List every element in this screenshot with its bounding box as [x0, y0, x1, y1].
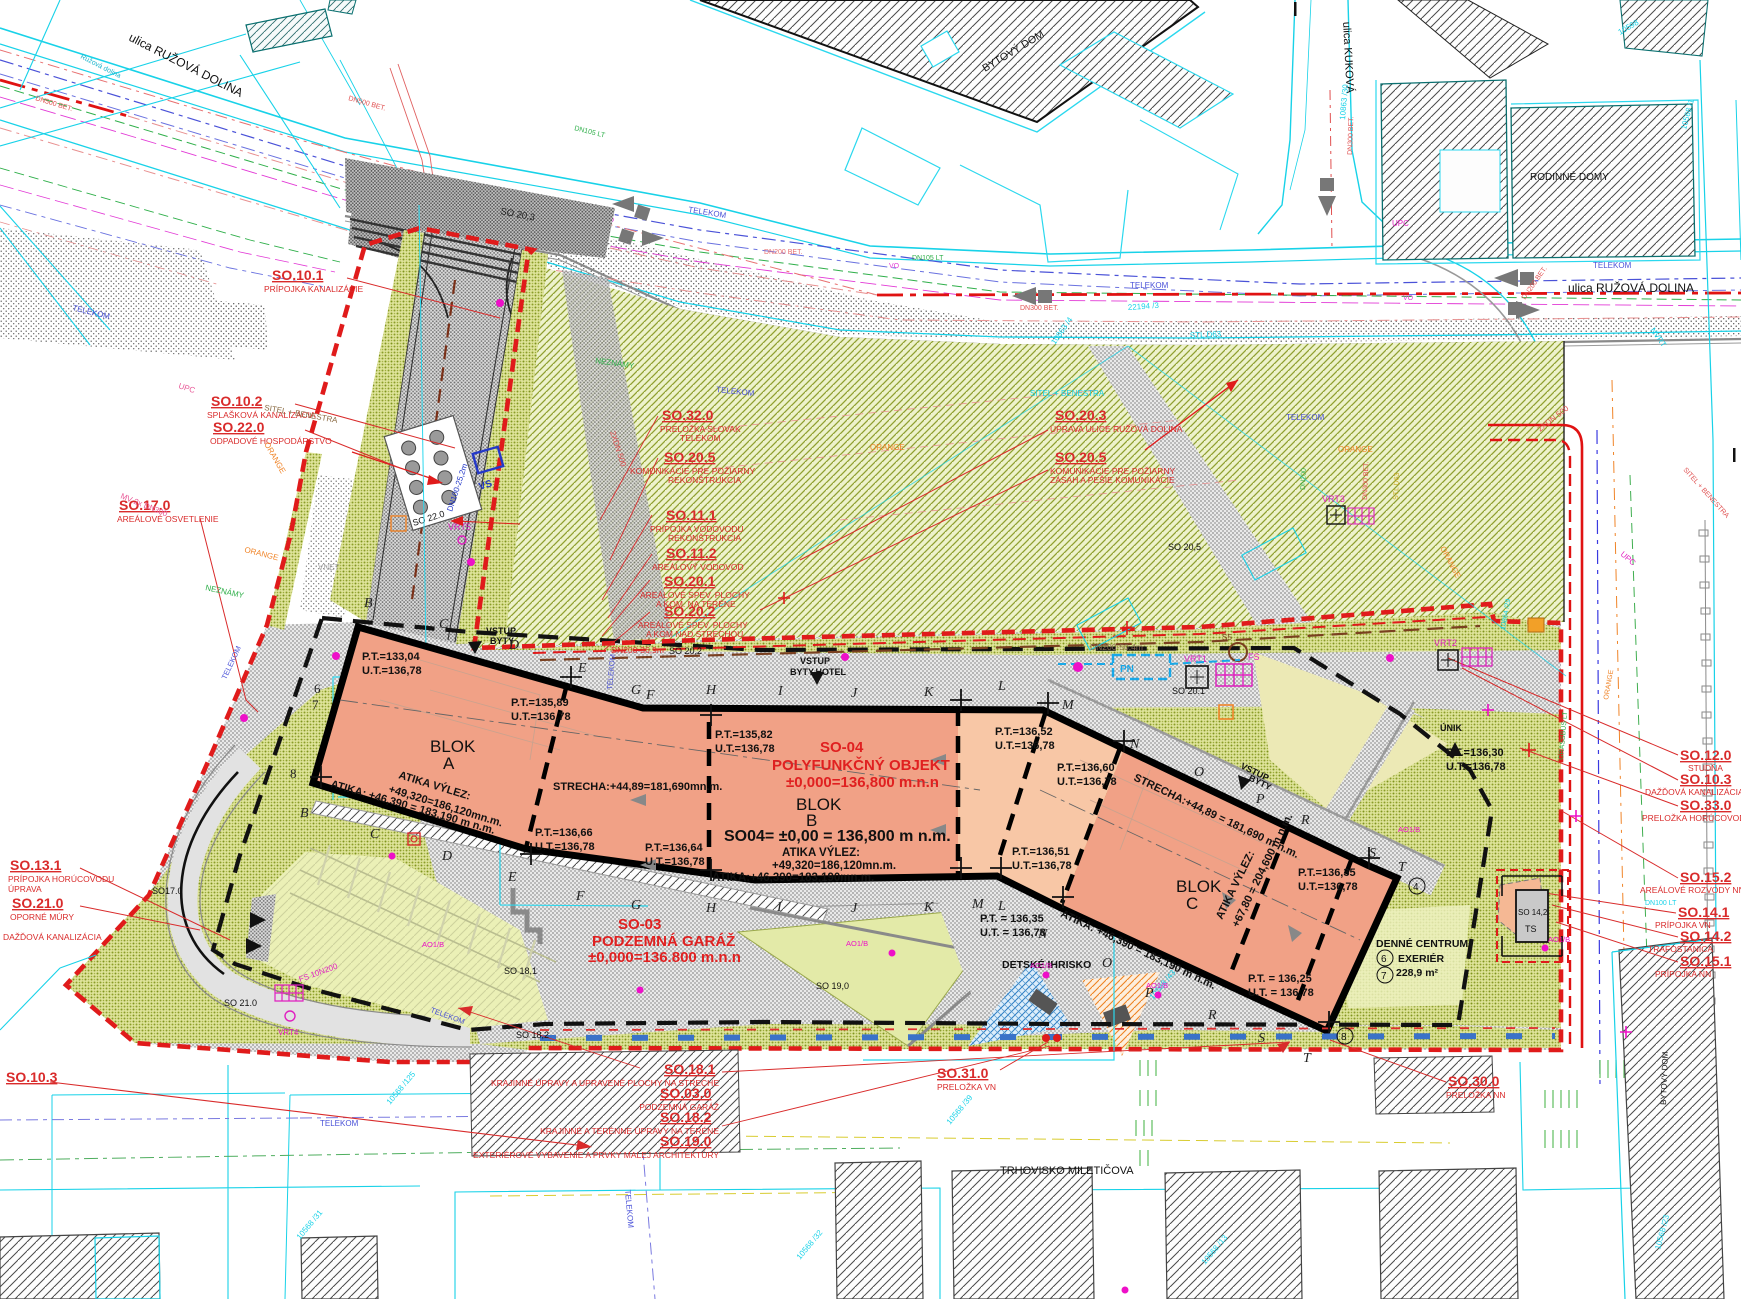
svg-text:TELEKOM: TELEKOM — [320, 1119, 359, 1128]
svg-text:BLOK: BLOK — [796, 795, 842, 814]
svg-text:SO.18.2: SO.18.2 — [660, 1109, 712, 1125]
svg-text:SO 21.0: SO 21.0 — [224, 998, 257, 1008]
svg-text:AO1/B: AO1/B — [422, 940, 444, 949]
svg-text:6: 6 — [1381, 954, 1387, 965]
svg-text:SO.14.2: SO.14.2 — [1680, 928, 1732, 944]
svg-text:U.T.=136,78: U.T.=136,78 — [1012, 860, 1072, 872]
svg-text:T: T — [1303, 1051, 1312, 1066]
svg-text:AREÁLOVÝ VODOVOD: AREÁLOVÝ VODOVOD — [652, 562, 744, 572]
svg-text:+49,320=186,120mn.m.: +49,320=186,120mn.m. — [772, 860, 896, 872]
svg-text:SO 20,5: SO 20,5 — [1168, 542, 1201, 552]
svg-text:AO1/B: AO1/B — [1398, 825, 1420, 834]
svg-text:U.T.=136,78: U.T.=136,78 — [645, 856, 705, 868]
svg-text:U.T. = 136,78: U.T. = 136,78 — [1248, 987, 1314, 999]
svg-text:O: O — [1102, 956, 1112, 971]
svg-text:VO: VO — [889, 263, 900, 270]
svg-text:B: B — [364, 596, 373, 611]
svg-text:P.T.=136,52: P.T.=136,52 — [995, 726, 1053, 738]
svg-text:SO.11.2: SO.11.2 — [666, 545, 717, 561]
svg-text:E: E — [507, 870, 517, 885]
svg-text:DN200-50,4m: DN200-50,4m — [1090, 642, 1143, 652]
svg-text:228,9 m²: 228,9 m² — [1396, 967, 1439, 979]
svg-text:UPC: UPC — [1392, 219, 1409, 228]
svg-text:A KOM NAD STRECHOU: A KOM NAD STRECHOU — [646, 629, 743, 639]
svg-text:DN200-36,9m: DN200-36,9m — [611, 645, 664, 655]
svg-text:U.T. = 136,78: U.T. = 136,78 — [980, 927, 1046, 939]
svg-text:DENNÉ CENTRUM: DENNÉ CENTRUM — [1376, 937, 1468, 950]
svg-text:SO.21.0: SO.21.0 — [12, 895, 64, 911]
svg-text:ATIKA VÝLEZ:: ATIKA VÝLEZ: — [782, 846, 860, 859]
svg-text:U.T.=136,78: U.T.=136,78 — [1057, 776, 1117, 788]
svg-text:SO.22.0: SO.22.0 — [213, 419, 265, 435]
svg-text:VRT2: VRT2 — [1434, 638, 1457, 648]
svg-text:DN300 BET.: DN300 BET. — [1362, 461, 1370, 500]
svg-text:POLYFUNKČNÝ OBJEKT: POLYFUNKČNÝ OBJEKT — [772, 756, 950, 774]
svg-text:DN300 BET.: DN300 BET. — [1020, 305, 1059, 312]
svg-text:H: H — [705, 901, 717, 916]
svg-text:BYTOVÝ DOM: BYTOVÝ DOM — [1659, 1051, 1670, 1105]
svg-text:SO.11.1: SO.11.1 — [666, 507, 717, 523]
svg-text:AO1/B: AO1/B — [1030, 961, 1052, 970]
svg-text:ATIKA:+46,390=183,190mn.m.: ATIKA:+46,390=183,190mn.m. — [712, 872, 874, 884]
svg-text:DAŽĎOVÁ KANALIZÁCIA: DAŽĎOVÁ KANALIZÁCIA — [3, 932, 102, 942]
svg-text:SO.14.1: SO.14.1 — [1678, 904, 1730, 920]
svg-text:8: 8 — [1341, 1032, 1347, 1043]
svg-text:P.T.=136,60: P.T.=136,60 — [1057, 762, 1115, 774]
svg-text:EXTERIÉROVÉ VYBAVENIE A PRVKY: EXTERIÉROVÉ VYBAVENIE A PRVKY MALEJ ARCH… — [473, 1150, 719, 1160]
svg-text:SO.30.0: SO.30.0 — [1448, 1073, 1500, 1089]
svg-text:L: L — [997, 679, 1006, 694]
svg-text:SO04= ±0,00 = 136,800 m n.m.: SO04= ±0,00 = 136,800 m n.m. — [724, 828, 951, 845]
svg-text:SO.13.1: SO.13.1 — [10, 857, 62, 873]
svg-text:VRT4: VRT4 — [278, 1028, 299, 1037]
svg-text:A: A — [443, 754, 455, 773]
svg-text:SO.20.1: SO.20.1 — [664, 573, 716, 589]
svg-text:STRECHA:+44,89=181,690mn.m.: STRECHA:+44,89=181,690mn.m. — [553, 781, 722, 793]
svg-text:G: G — [631, 898, 641, 913]
svg-text:U.T.=136,78: U.T.=136,78 — [715, 743, 775, 755]
svg-text:4: 4 — [1413, 882, 1419, 893]
svg-text:E: E — [577, 661, 587, 676]
svg-text:SO 18,2: SO 18,2 — [516, 1030, 549, 1040]
svg-text:F: F — [645, 688, 655, 703]
svg-text:VNET: VNET — [318, 563, 339, 572]
svg-text:R: R — [1207, 1008, 1217, 1023]
svg-text:AO1/B: AO1/B — [1548, 935, 1570, 944]
svg-text:TELEKOM: TELEKOM — [1130, 281, 1169, 290]
svg-text:OPORNÉ MÚRY: OPORNÉ MÚRY — [10, 912, 74, 922]
svg-text:EXERIÉR: EXERIÉR — [1398, 952, 1445, 965]
svg-text:SO.20.2: SO.20.2 — [664, 603, 716, 619]
svg-text:U.T.=136,78: U.T.=136,78 — [995, 740, 1055, 752]
svg-text:TELEKOM: TELEKOM — [680, 433, 721, 443]
svg-text:F: F — [575, 889, 585, 904]
svg-text:P.T.=136,51: P.T.=136,51 — [1012, 846, 1070, 858]
svg-text:P.T.=136,64: P.T.=136,64 — [645, 842, 703, 854]
svg-text:REKONŠTRUKCIA: REKONŠTRUKCIA — [668, 533, 742, 543]
svg-text:S5: S5 — [1222, 633, 1232, 642]
svg-text:N: N — [1129, 737, 1140, 752]
svg-text:AO1/B: AO1/B — [1146, 981, 1168, 990]
svg-text:SO 14,2: SO 14,2 — [1518, 908, 1548, 917]
svg-text:J: J — [851, 686, 858, 701]
svg-text:PRELOŽKA NN: PRELOŽKA NN — [1446, 1090, 1506, 1100]
svg-text:ÚPRAVA: ÚPRAVA — [8, 884, 42, 894]
svg-text:AO1/B: AO1/B — [846, 939, 868, 948]
svg-text:ORANGE: ORANGE — [870, 443, 905, 452]
svg-text:DN300 BET.: DN300 BET. — [1347, 116, 1355, 155]
svg-text:M: M — [1061, 698, 1075, 713]
svg-text:U.T.=136,78: U.T.=136,78 — [1446, 761, 1506, 773]
svg-text:SO.15.2: SO.15.2 — [1680, 869, 1732, 885]
svg-text:P: P — [1255, 792, 1265, 807]
svg-text:ulica RUŽOVÁ DOLINA: ulica RUŽOVÁ DOLINA — [1568, 280, 1694, 295]
svg-text:U.T.=136,78: U.T.=136,78 — [511, 711, 571, 723]
svg-text:SO.20.3: SO.20.3 — [1055, 407, 1107, 423]
svg-text:PRELOŽKA HORÚCOVODU: PRELOŽKA HORÚCOVODU — [1642, 813, 1741, 823]
svg-text:PODZEMNÁ GARÁŽ: PODZEMNÁ GARÁŽ — [592, 932, 735, 950]
svg-text:ZÁSAH A PEŠIE KOMUNIKÁCIE: ZÁSAH A PEŠIE KOMUNIKÁCIE — [1050, 475, 1175, 485]
svg-text:P.T.=135,89: P.T.=135,89 — [511, 697, 569, 709]
svg-text:S: S — [1258, 1031, 1265, 1046]
svg-text:T: T — [1398, 860, 1407, 875]
svg-text:PN: PN — [1120, 664, 1134, 675]
svg-text:DN200: DN200 — [1300, 468, 1308, 490]
svg-text:SO.15.1: SO.15.1 — [1680, 953, 1732, 969]
svg-text:REKONŠTRUKCIA: REKONŠTRUKCIA — [668, 475, 742, 485]
svg-text:TELEKOM: TELEKOM — [1286, 413, 1325, 422]
svg-text:VSTUP: VSTUP — [800, 656, 830, 666]
svg-text:C: C — [370, 827, 380, 842]
svg-text:DN105 LT: DN105 LT — [912, 255, 944, 262]
svg-text:P.T.=133,04: P.T.=133,04 — [362, 651, 420, 663]
svg-text:SO 18,1: SO 18,1 — [504, 966, 537, 976]
svg-text:BYTY,HOTEL: BYTY,HOTEL — [790, 667, 847, 677]
svg-text:VSTUP: VSTUP — [486, 626, 516, 636]
svg-text:STL D63: STL D63 — [1190, 329, 1222, 340]
svg-text:O: O — [1194, 765, 1204, 780]
svg-text:N: N — [1037, 927, 1048, 942]
svg-text:SO.32.0: SO.32.0 — [662, 407, 714, 423]
svg-text:P.T.=136,35: P.T.=136,35 — [1298, 867, 1356, 879]
svg-text:L: L — [997, 899, 1006, 914]
svg-text:SO.20.5: SO.20.5 — [664, 449, 716, 465]
svg-text:7: 7 — [1381, 971, 1387, 982]
svg-text:SO.12.0: SO.12.0 — [1680, 747, 1732, 763]
svg-text:C: C — [1186, 894, 1198, 913]
svg-text:P.T.=135,82: P.T.=135,82 — [715, 729, 773, 741]
svg-text:ÚPRAVA ULICE RUŽOVÁ DOLINA: ÚPRAVA ULICE RUŽOVÁ DOLINA — [1050, 424, 1183, 434]
svg-text:STL D63: STL D63 — [1393, 472, 1401, 500]
svg-text:D: D — [508, 638, 519, 653]
svg-text:ÚNIK: ÚNIK — [1440, 722, 1462, 733]
svg-text:8: 8 — [290, 766, 297, 781]
svg-text:SO.10.2: SO.10.2 — [211, 393, 263, 409]
svg-text:SO 19,0: SO 19,0 — [816, 981, 849, 991]
svg-text:K: K — [923, 685, 934, 700]
svg-text:6: 6 — [314, 681, 321, 696]
svg-text:G: G — [631, 683, 641, 698]
svg-text:RODINNÉ DOMY: RODINNÉ DOMY — [1530, 170, 1609, 183]
svg-text:ORANGE: ORANGE — [1338, 445, 1373, 454]
svg-text:U.T.=136,78: U.T.=136,78 — [1298, 881, 1358, 893]
svg-text:U.T.=136,78: U.T.=136,78 — [535, 841, 595, 853]
svg-text:SO 20,2: SO 20,2 — [669, 646, 702, 656]
svg-text:B: B — [300, 806, 309, 821]
svg-text:K: K — [923, 900, 934, 915]
svg-text:R: R — [1300, 813, 1310, 828]
svg-text:BLOK: BLOK — [1176, 877, 1222, 896]
svg-text:±0,000=136.800 m.n.n: ±0,000=136.800 m.n.n — [588, 949, 741, 966]
svg-text:D: D — [441, 849, 452, 864]
svg-text:SO.10.3: SO.10.3 — [1680, 771, 1732, 787]
svg-text:7: 7 — [312, 697, 319, 712]
svg-text:C: C — [439, 617, 449, 632]
svg-text:AREÁLOVÉ OSVETLENIE: AREÁLOVÉ OSVETLENIE — [117, 514, 219, 524]
svg-text:SO.03.0: SO.03.0 — [660, 1085, 712, 1101]
svg-text:TELEKOM: TELEKOM — [1593, 261, 1632, 270]
svg-text:DN100 LT: DN100 LT — [1645, 900, 1677, 907]
svg-text:PRÍPOJKA KANALIZÁCIE: PRÍPOJKA KANALIZÁCIE — [264, 284, 364, 294]
svg-text:±0,000=136,800 m.n.n: ±0,000=136,800 m.n.n — [786, 774, 939, 791]
svg-text:SITEL + BENESTRA: SITEL + BENESTRA — [1030, 389, 1105, 398]
svg-text:SO-03: SO-03 — [618, 916, 661, 933]
svg-text:VRT3: VRT3 — [1322, 494, 1345, 504]
svg-text:SO.10.1: SO.10.1 — [272, 267, 324, 283]
svg-text:AREÁLOVÉ ROZVODY NN: AREÁLOVÉ ROZVODY NN — [1640, 885, 1741, 895]
svg-text:SO17.0: SO17.0 — [152, 886, 183, 896]
svg-text:TRHOVISKO MILETIČOVA: TRHOVISKO MILETIČOVA — [1000, 1164, 1134, 1177]
svg-text:TS: TS — [1525, 924, 1537, 934]
svg-text:DN200 BET.: DN200 BET. — [764, 249, 803, 256]
svg-text:J: J — [851, 901, 858, 916]
svg-text:M: M — [971, 897, 985, 912]
svg-text:P.T. = 136,35: P.T. = 136,35 — [980, 913, 1044, 925]
svg-text:SO.33.0: SO.33.0 — [1680, 797, 1732, 813]
svg-text:SO-04: SO-04 — [820, 739, 864, 756]
svg-text:SO.18.1: SO.18.1 — [664, 1061, 716, 1077]
svg-text:PRÍPOJKA HORÚCOVODU: PRÍPOJKA HORÚCOVODU — [8, 874, 114, 884]
svg-text:SO.10.3: SO.10.3 — [6, 1069, 58, 1085]
svg-text:VO: VO — [1403, 295, 1414, 302]
svg-text:FS: FS — [1248, 652, 1260, 662]
svg-text:PRÍPOJKA NN: PRÍPOJKA NN — [1655, 969, 1711, 979]
svg-text:P.T.=136,66: P.T.=136,66 — [535, 827, 593, 839]
svg-text:P.T. = 136,25: P.T. = 136,25 — [1248, 973, 1312, 985]
svg-text:SO.20.5: SO.20.5 — [1055, 449, 1107, 465]
svg-text:SO.19.0: SO.19.0 — [660, 1133, 712, 1149]
svg-text:PRELOŽKA VN: PRELOŽKA VN — [937, 1082, 996, 1092]
svg-text:U.T.=136,78: U.T.=136,78 — [362, 665, 422, 677]
svg-text:H: H — [705, 683, 717, 698]
svg-text:DAŽĎOVÁ KANALIZÁCIA: DAŽĎOVÁ KANALIZÁCIA — [1645, 787, 1741, 797]
